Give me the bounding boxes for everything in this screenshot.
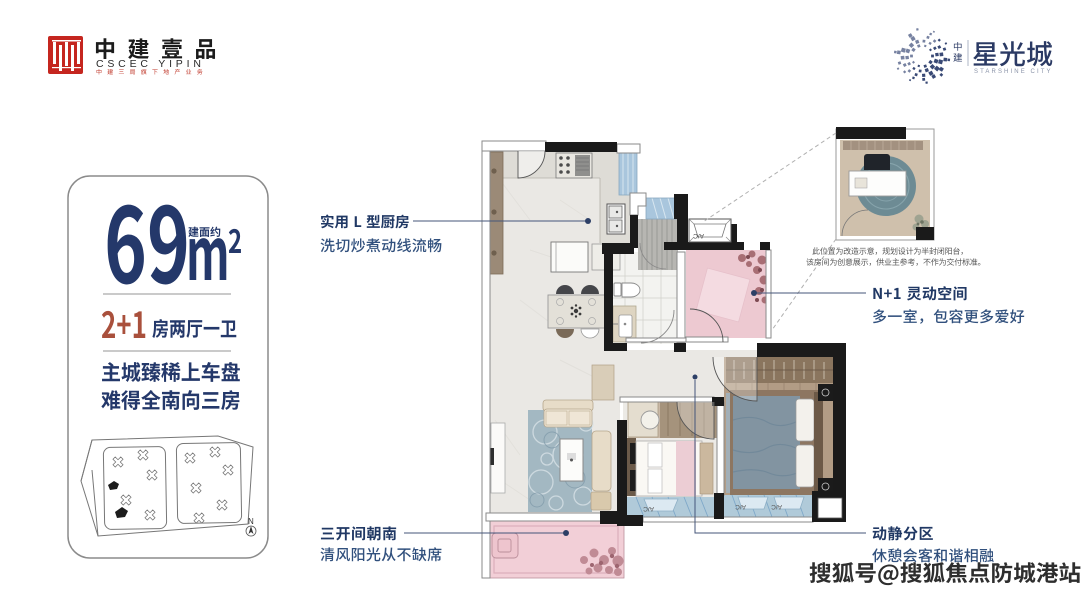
svg-text:CSCEC YIPIN: CSCEC YIPIN bbox=[96, 58, 205, 70]
svg-text:N: N bbox=[248, 517, 254, 526]
svg-text:A/C: A/C bbox=[643, 505, 654, 512]
svg-text:A/C: A/C bbox=[771, 503, 782, 510]
svg-text:A/C: A/C bbox=[693, 232, 704, 239]
svg-text:STARSHINE CITY: STARSHINE CITY bbox=[974, 69, 1053, 75]
svg-text:A/C: A/C bbox=[735, 503, 746, 510]
